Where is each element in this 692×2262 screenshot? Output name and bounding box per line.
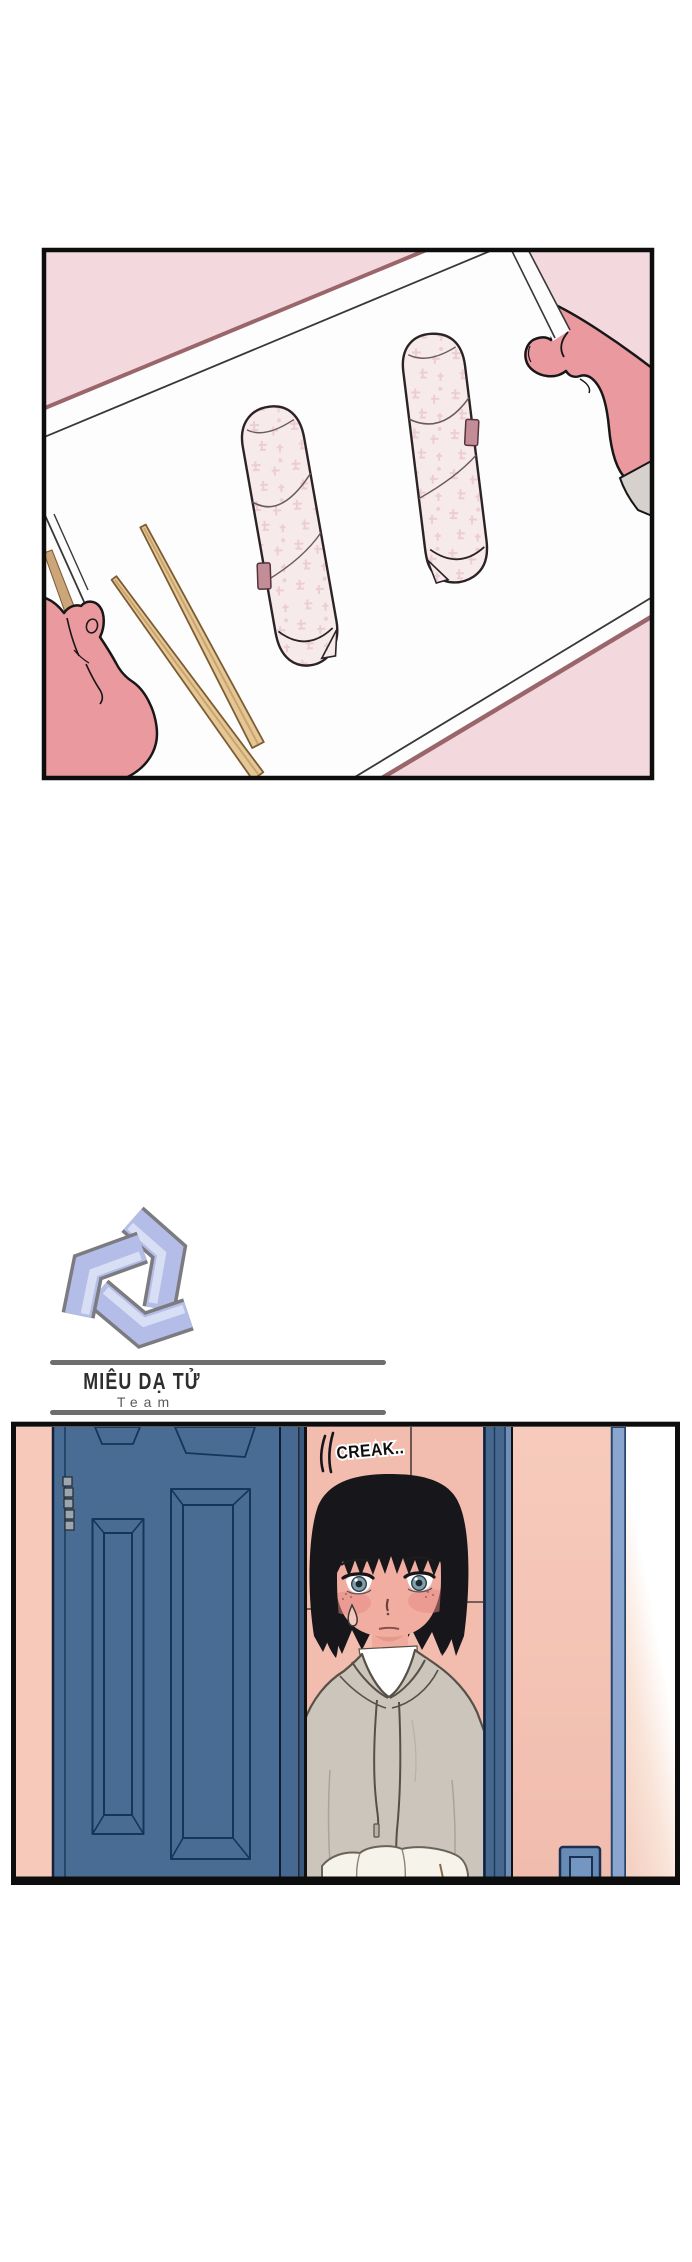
svg-text:Team: Team [117,1394,175,1410]
svg-text:MIÊU DẠ TỬ: MIÊU DẠ TỬ [83,1368,200,1395]
